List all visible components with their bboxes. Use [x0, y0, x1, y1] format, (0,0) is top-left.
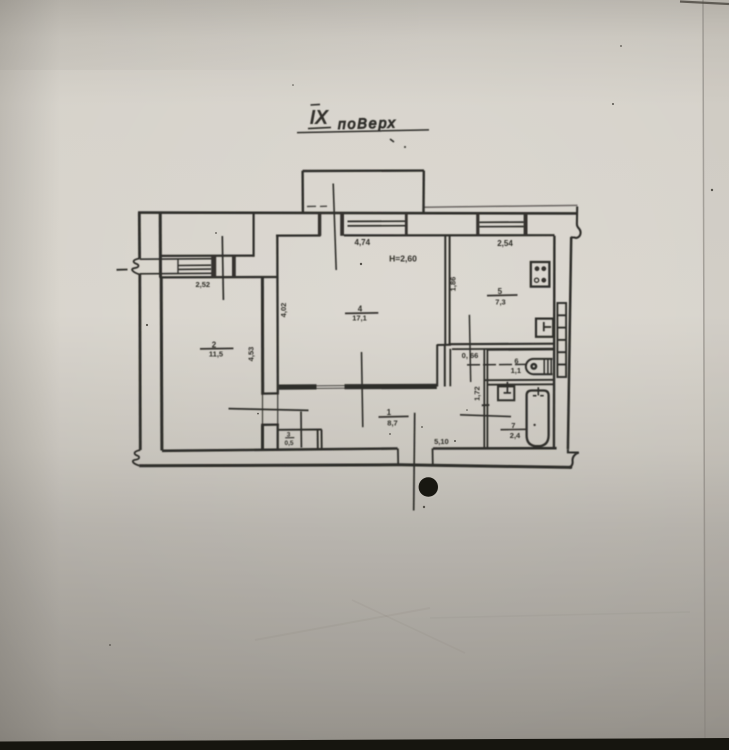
svg-text:1,1: 1,1	[511, 366, 521, 375]
svg-text:1,72: 1,72	[472, 386, 481, 401]
svg-text:6: 6	[514, 356, 518, 365]
svg-text:11,5: 11,5	[209, 350, 223, 359]
svg-text:7,3: 7,3	[495, 298, 505, 307]
svg-text:7: 7	[511, 421, 515, 430]
svg-text:1,86: 1,86	[448, 277, 457, 292]
svg-text:1: 1	[387, 408, 392, 417]
svg-text:4: 4	[358, 304, 363, 313]
svg-text:2,4: 2,4	[510, 431, 521, 440]
svg-text:4,02: 4,02	[279, 303, 288, 318]
svg-text:2,54: 2,54	[497, 239, 513, 248]
svg-text:2,52: 2,52	[195, 280, 210, 289]
svg-text:0,5: 0,5	[284, 440, 293, 447]
svg-text:8,7: 8,7	[387, 418, 397, 427]
svg-text:17,1: 17,1	[352, 314, 367, 323]
svg-text:0, 66: 0, 66	[462, 351, 479, 360]
svg-text:ІХ: ІХ	[310, 108, 329, 128]
svg-text:4,74: 4,74	[355, 238, 371, 247]
svg-text:5,10: 5,10	[434, 437, 449, 446]
svg-text:4,53: 4,53	[247, 347, 256, 362]
svg-text:Н=2,60: Н=2,60	[389, 254, 417, 264]
